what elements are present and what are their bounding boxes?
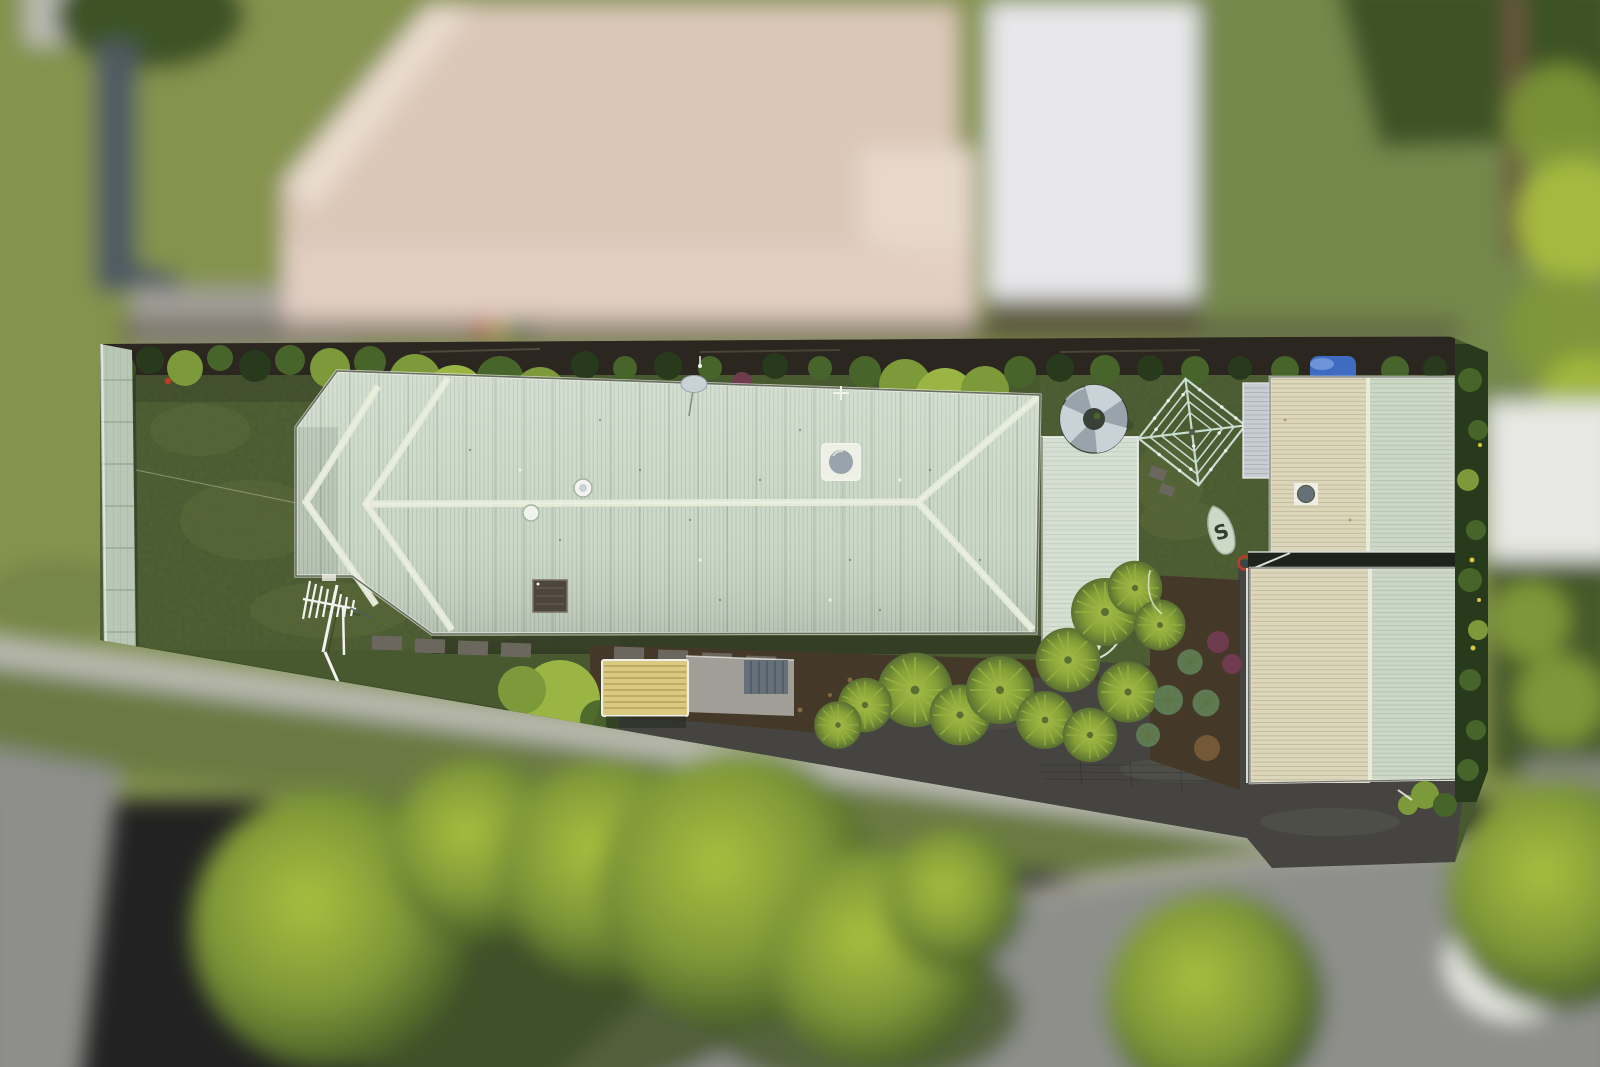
neighbour-green-right	[1488, 560, 1600, 775]
main-house-roof	[296, 356, 1077, 634]
left-boundary-fence	[100, 344, 137, 652]
neighbour-white-roof	[988, 4, 1198, 340]
shed-vent	[1294, 483, 1318, 505]
vent-box	[533, 580, 567, 612]
lower-shed	[1247, 568, 1472, 783]
window-awning	[602, 660, 688, 728]
shed-gap	[1248, 552, 1465, 569]
red-flower	[165, 378, 171, 384]
neighbour-driveway-white	[1488, 402, 1600, 567]
right-boundary-hedge	[1455, 344, 1488, 802]
skylight	[822, 444, 860, 480]
upper-shed	[1243, 377, 1455, 552]
aerial-photo: S	[0, 0, 1600, 1067]
downpipe	[322, 574, 336, 581]
patio	[686, 656, 794, 716]
